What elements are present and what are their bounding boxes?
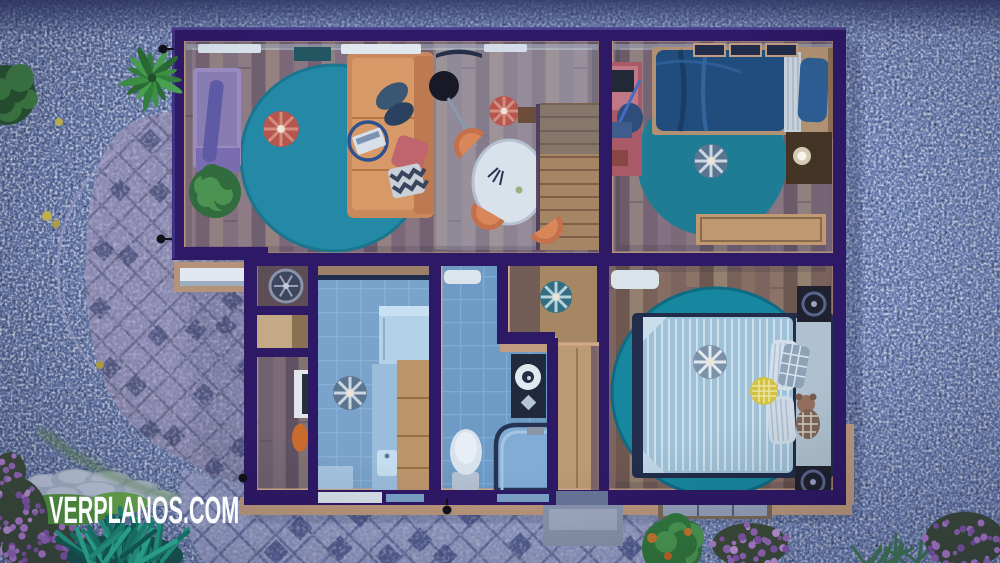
svg-text:VERPLANOS.COM: VERPLANOS.COM [49, 489, 239, 532]
